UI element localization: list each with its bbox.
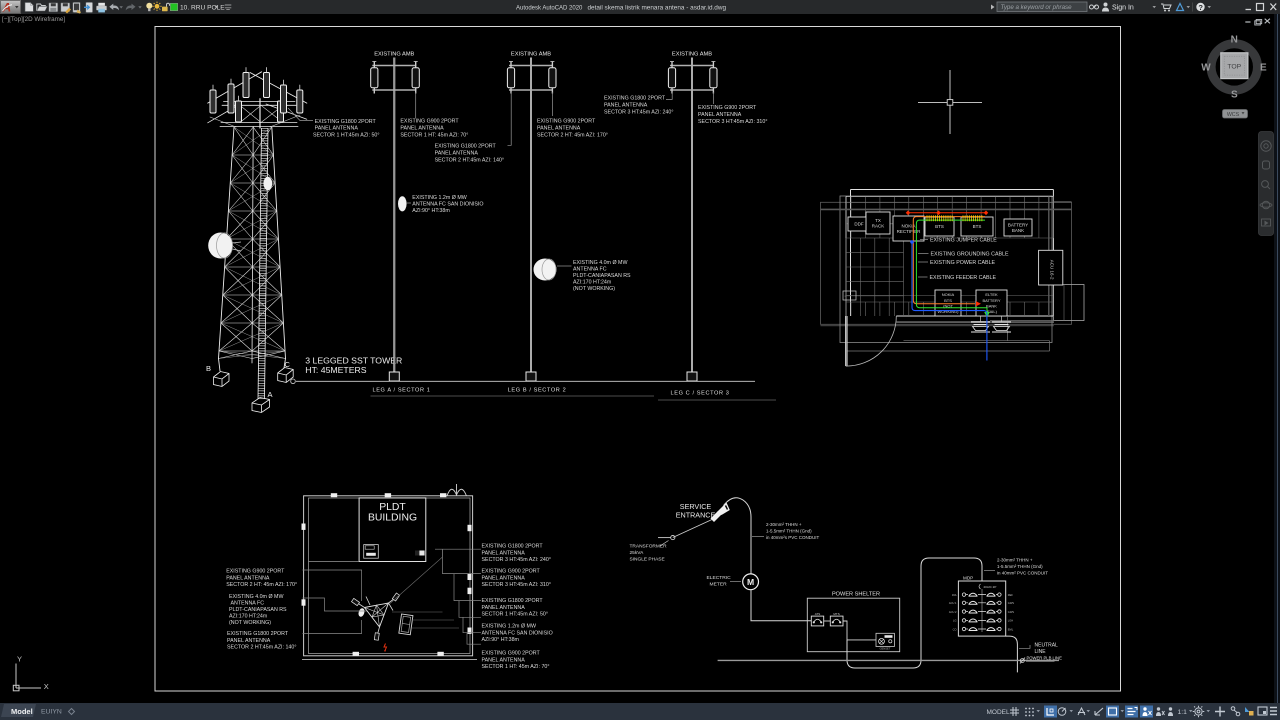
- svg-text:ENTRANCE: ENTRANCE: [676, 511, 716, 520]
- svg-text:GENSET: GENSET: [880, 647, 891, 651]
- svg-text:MTS: MTS: [833, 612, 839, 616]
- svg-text:LEG B / SECTOR 2: LEG B / SECTOR 2: [508, 388, 567, 394]
- svg-text:ACU 1: ACU 1: [949, 601, 957, 605]
- svg-text:A: A: [268, 390, 273, 399]
- svg-text:(NOT WORKING): (NOT WORKING): [573, 286, 615, 292]
- svg-text:EXISTING G900 2PORT: EXISTING G900 2PORT: [537, 119, 596, 125]
- svg-text:PANEL ANTENNA: PANEL ANTENNA: [400, 126, 444, 132]
- svg-text:ACU 16-2: ACU 16-2: [1050, 260, 1055, 280]
- svg-text:EXISTING G900 2PORT: EXISTING G900 2PORT: [698, 105, 757, 111]
- svg-text:AZI:90° HT:38m: AZI:90° HT:38m: [482, 637, 520, 643]
- svg-text:PLDT-CANIAPASAN RS: PLDT-CANIAPASAN RS: [229, 607, 287, 613]
- svg-text:Y: Y: [17, 655, 22, 664]
- svg-text:BUILDING: BUILDING: [368, 513, 417, 524]
- svg-text:LEG C / SECTOR 3: LEG C / SECTOR 3: [671, 391, 730, 397]
- svg-text:EXISTING G1800 2PORT: EXISTING G1800 2PORT: [227, 631, 289, 637]
- svg-text:BTS: BTS: [973, 224, 982, 229]
- svg-text:ANTENNA FC SAN DIONISIO: ANTENNA FC SAN DIONISIO: [482, 630, 553, 636]
- svg-text:EXISTING FEEDER CABLE: EXISTING FEEDER CABLE: [930, 275, 997, 281]
- svg-text:EXISTING G1800 2PORT: EXISTING G1800 2PORT: [315, 119, 377, 125]
- svg-text:ANTENNA FC: ANTENNA FC: [231, 601, 265, 607]
- svg-text:AZI:170 HT:24m: AZI:170 HT:24m: [573, 280, 612, 286]
- svg-text:BANK: BANK: [1012, 228, 1024, 233]
- svg-text:NEUTRAL: NEUTRAL: [1035, 642, 1059, 648]
- svg-text:C: C: [285, 360, 291, 369]
- svg-text:SECTOR 1 HT:45m AZI: 50°: SECTOR 1 HT:45m AZI: 50°: [313, 133, 380, 139]
- svg-text:EUIYN: EUIYN: [41, 709, 62, 716]
- svg-text:EXISTING G1800 2PORT: EXISTING G1800 2PORT: [482, 544, 544, 550]
- svg-text:GWS: GWS: [1008, 601, 1014, 605]
- svg-text:PLDT: PLDT: [379, 502, 406, 513]
- svg-text:ELECTRIC: ELECTRIC: [707, 575, 732, 581]
- svg-text:2-30mm² THHN +: 2-30mm² THHN +: [766, 522, 802, 527]
- svg-text:LG: LG: [953, 619, 956, 623]
- svg-text:EXISTING AMB: EXISTING AMB: [672, 52, 712, 58]
- svg-text:WCS: WCS: [1227, 112, 1240, 118]
- svg-text:SECTOR 2 HT: 45m AZI: 170°: SECTOR 2 HT: 45m AZI: 170°: [226, 582, 297, 588]
- svg-text:20A/C 2P: 20A/C 2P: [984, 585, 997, 589]
- svg-text:EXISTING G1800 2PORT: EXISTING G1800 2PORT: [435, 144, 497, 150]
- svg-text:TX: TX: [875, 218, 881, 223]
- svg-text:AZI:90° HT:38m: AZI:90° HT:38m: [412, 208, 450, 214]
- svg-text:1-5.5mm² THHN (Gnd): 1-5.5mm² THHN (Gnd): [766, 529, 812, 534]
- svg-text:RACK: RACK: [872, 223, 885, 228]
- svg-text:EXISTING G900 2PORT: EXISTING G900 2PORT: [482, 569, 541, 575]
- svg-text:SECTOR 1 HT: 45m AZI: 70°: SECTOR 1 HT: 45m AZI: 70°: [400, 133, 468, 139]
- svg-text:PANEL ANTENNA: PANEL ANTENNA: [482, 550, 526, 556]
- svg-text:EXISTING G900 2PORT: EXISTING G900 2PORT: [482, 651, 541, 657]
- svg-text:EXISTING G1800 2PORT: EXISTING G1800 2PORT: [604, 96, 666, 102]
- svg-text:(NOT WORKING): (NOT WORKING): [229, 620, 271, 626]
- svg-text:25kVA: 25kVA: [630, 550, 645, 556]
- svg-text:▫: ▫: [845, 294, 846, 298]
- svg-text:REF: REF: [1008, 593, 1014, 597]
- svg-text:PANEL ANTENNA: PANEL ANTENNA: [537, 126, 581, 132]
- svg-text:SECTOR 3 HT:45m AZI: 240°: SECTOR 3 HT:45m AZI: 240°: [482, 557, 551, 563]
- svg-text:PANEL ANTENNA: PANEL ANTENNA: [315, 126, 359, 132]
- svg-text:PANEL ANTENNA: PANEL ANTENNA: [482, 657, 526, 663]
- svg-text:N: N: [1231, 35, 1238, 46]
- svg-text:SECTOR 1 HT: 45m AZI: 70°: SECTOR 1 HT: 45m AZI: 70°: [482, 664, 550, 670]
- svg-text:SECTOR 3 HT:45m AZI: 310°: SECTOR 3 HT:45m AZI: 310°: [482, 582, 551, 588]
- svg-text:METER: METER: [710, 582, 728, 588]
- svg-text:B: B: [206, 364, 211, 373]
- svg-text:GWS: GWS: [1008, 610, 1014, 614]
- svg-text:RECTIFIER: RECTIFIER: [897, 229, 922, 234]
- svg-text:EXISTING GROUNDING CABLE: EXISTING GROUNDING CABLE: [931, 252, 1009, 258]
- svg-text:EXISTING G900 2PORT: EXISTING G900 2PORT: [400, 119, 459, 125]
- svg-text:E: E: [1260, 63, 1267, 74]
- svg-text:EXISTING G1800 2PORT: EXISTING G1800 2PORT: [482, 598, 544, 604]
- svg-text:BANK: BANK: [986, 303, 997, 308]
- svg-text:CO: CO: [953, 627, 957, 631]
- svg-text:PLDT-CANIAPASAN RS: PLDT-CANIAPASAN RS: [573, 273, 631, 279]
- svg-text:SECTOR 2 HT:45m AZI: 140°: SECTOR 2 HT:45m AZI: 140°: [227, 645, 296, 651]
- svg-text:SECTOR 1 HT:45m AZI: 50°: SECTOR 1 HT:45m AZI: 50°: [482, 612, 549, 618]
- svg-text:WORKING): WORKING): [938, 309, 960, 314]
- svg-text:30A: 30A: [952, 593, 957, 597]
- svg-text:EML: EML: [1008, 627, 1014, 631]
- svg-text:1-5.5mm² THHN (Gnd): 1-5.5mm² THHN (Gnd): [997, 564, 1043, 569]
- svg-text:W: W: [1201, 63, 1211, 74]
- svg-text:PANEL ANTENNA: PANEL ANTENNA: [482, 605, 526, 611]
- svg-text:1:1: 1:1: [1178, 709, 1188, 716]
- svg-text:PANEL ANTENNA: PANEL ANTENNA: [435, 151, 479, 157]
- svg-text:BTS: BTS: [944, 298, 952, 303]
- svg-text:LEG A / SECTOR 1: LEG A / SECTOR 1: [373, 388, 431, 394]
- svg-text:NOKIA: NOKIA: [942, 292, 955, 297]
- svg-text:EXISTING JUMPER CABLE: EXISTING JUMPER CABLE: [930, 238, 997, 244]
- svg-text:PANEL ANTENNA: PANEL ANTENNA: [227, 638, 271, 644]
- svg-text:TOP: TOP: [1227, 64, 1241, 71]
- svg-text:SINGLE PHASE: SINGLE PHASE: [630, 557, 665, 563]
- svg-text:M: M: [747, 577, 754, 587]
- svg-text:EXISTING AMB: EXISTING AMB: [511, 52, 551, 58]
- svg-text:BATTERY: BATTERY: [982, 298, 1000, 303]
- svg-text:S: S: [1231, 90, 1238, 101]
- svg-text:EXISTING 1.2m Ø MW: EXISTING 1.2m Ø MW: [412, 195, 466, 201]
- svg-text:ATS: ATS: [815, 612, 821, 616]
- svg-text:PANEL ANTENNA: PANEL ANTENNA: [604, 103, 648, 109]
- svg-text:Model: Model: [11, 707, 33, 716]
- svg-text:SECTOR 2 HT: 45m AZI: 170°: SECTOR 2 HT: 45m AZI: 170°: [537, 133, 608, 139]
- svg-text:ANTENNA FC: ANTENNA FC: [573, 267, 607, 273]
- svg-text:SECTOR 3 HT:45m AZI: 240°: SECTOR 3 HT:45m AZI: 240°: [604, 110, 673, 116]
- svg-text:DDF: DDF: [854, 222, 863, 227]
- svg-text:PANEL ANTENNA: PANEL ANTENNA: [482, 575, 526, 581]
- svg-text:LGH: LGH: [1008, 619, 1013, 623]
- svg-text:EXISTING 4.0m Ø MW: EXISTING 4.0m Ø MW: [573, 260, 627, 266]
- svg-text:PANEL ANTENNA: PANEL ANTENNA: [698, 112, 742, 118]
- svg-text:X: X: [44, 682, 49, 691]
- svg-text:BATTERY: BATTERY: [1008, 222, 1028, 227]
- svg-text:EXISTING 1.2m Ø MW: EXISTING 1.2m Ø MW: [482, 624, 536, 630]
- svg-text:MDP: MDP: [963, 576, 973, 581]
- svg-text:EXISTING G900 2PORT: EXISTING G900 2PORT: [226, 569, 285, 575]
- svg-text:EXISTING 4.0m Ø MW: EXISTING 4.0m Ø MW: [229, 594, 283, 600]
- svg-text:EXISTING AMB: EXISTING AMB: [374, 52, 414, 58]
- svg-text:ANTENNA FC SAN DIONISIO: ANTENNA FC SAN DIONISIO: [412, 202, 483, 208]
- svg-text:2-30mm² THHN +: 2-30mm² THHN +: [997, 558, 1033, 563]
- svg-text:LINE: LINE: [1035, 649, 1047, 655]
- svg-text:POWER SHELTER: POWER SHELTER: [832, 592, 880, 598]
- svg-text:HT: 45METERS: HT: 45METERS: [305, 365, 367, 375]
- svg-text:SECTOR 3 HT:45m AZI: 310°: SECTOR 3 HT:45m AZI: 310°: [698, 119, 767, 125]
- svg-text:PANEL ANTENNA: PANEL ANTENNA: [226, 575, 270, 581]
- svg-text:POWER PLB LINE: POWER PLB LINE: [1027, 655, 1063, 660]
- svg-text:in 40mm²s PVC CONDUIT: in 40mm²s PVC CONDUIT: [766, 535, 820, 540]
- svg-text:ACU 2: ACU 2: [949, 610, 957, 614]
- svg-text:AZI:170 HT:24m: AZI:170 HT:24m: [229, 614, 268, 620]
- svg-text:in 40mm² PVC CONDUIT: in 40mm² PVC CONDUIT: [997, 571, 1048, 576]
- svg-text:SECTOR 2 HT:45m AZI: 140°: SECTOR 2 HT:45m AZI: 140°: [435, 158, 504, 164]
- svg-text:EXISTING POWER CABLE: EXISTING POWER CABLE: [930, 260, 996, 266]
- svg-text:TRANSFORMER: TRANSFORMER: [630, 544, 668, 550]
- svg-text:BTS: BTS: [935, 224, 944, 229]
- svg-text:ELTEK: ELTEK: [985, 292, 998, 297]
- svg-text:MODEL: MODEL: [987, 709, 1011, 716]
